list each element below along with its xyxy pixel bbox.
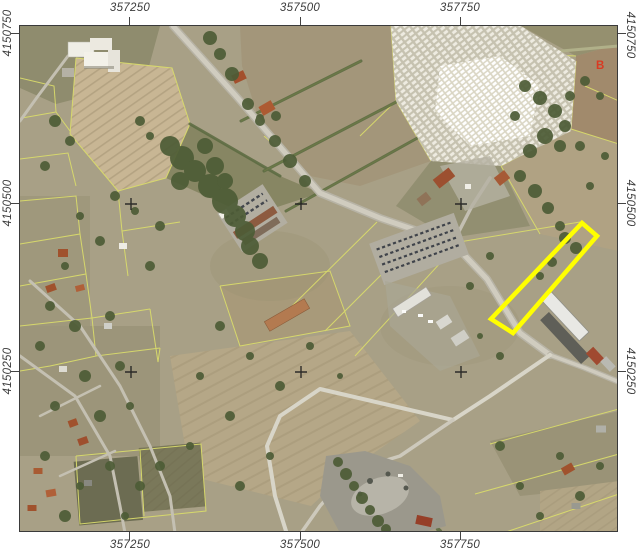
map-figure: 357250 357500 357750 357250 357500 35775… <box>0 0 640 555</box>
coord-left-3: 4150250 <box>2 348 14 395</box>
coord-right-3: 4150250 <box>624 348 636 395</box>
coord-right-1: 4150750 <box>624 12 636 59</box>
tick-top-3 <box>460 17 461 25</box>
coord-left-2: 4150500 <box>2 180 14 227</box>
tick-top-2 <box>300 17 301 25</box>
coord-bottom-3: 357750 <box>425 539 495 551</box>
coord-bottom-2: 357500 <box>265 539 335 551</box>
map-frame <box>19 25 618 532</box>
coord-right-2: 4150500 <box>624 180 636 227</box>
tick-top-1 <box>129 17 130 25</box>
coord-top-1: 357250 <box>95 2 165 14</box>
coord-bottom-1: 357250 <box>95 539 165 551</box>
coord-left-1: 4150750 <box>2 10 14 57</box>
coord-top-3: 357750 <box>425 2 495 14</box>
marker-b-label: B <box>596 61 604 73</box>
coord-top-2: 357500 <box>265 2 335 14</box>
aerial-photo <box>20 26 618 532</box>
